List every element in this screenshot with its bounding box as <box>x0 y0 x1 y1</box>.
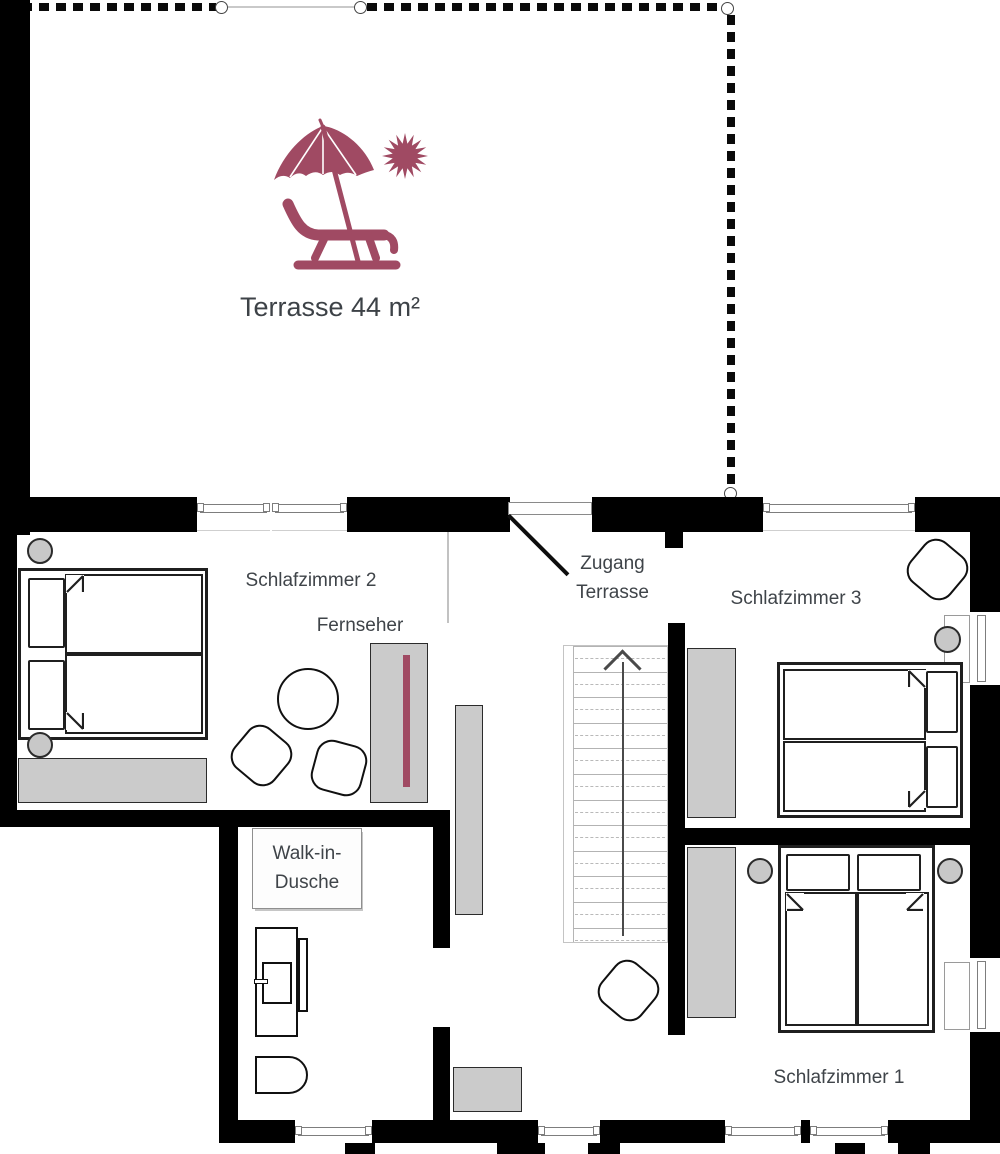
bedside-lamp <box>747 858 773 884</box>
staircase <box>563 645 668 943</box>
vanity-side-panel <box>298 938 308 1012</box>
south-wall-mullion <box>801 1120 810 1143</box>
stair-treads <box>573 646 667 942</box>
bedroom2-label: Schlafzimmer 2 <box>225 567 397 596</box>
south-wall-c <box>600 1120 725 1143</box>
terrace-label: Terrasse 44 m² <box>240 292 420 323</box>
south-wall-b <box>372 1120 538 1143</box>
shower-label-line2: Dusche <box>275 872 339 893</box>
pillow <box>28 660 65 730</box>
terrace-left-wall <box>0 0 30 535</box>
bedside-lamp <box>937 858 963 884</box>
terrace-door <box>508 502 592 515</box>
bedroom1-window-south-2 <box>810 1120 888 1143</box>
bedroom2-bench <box>18 758 207 803</box>
pillow <box>857 854 921 891</box>
bedroom2-window-2 <box>272 497 347 532</box>
mattress <box>65 654 203 734</box>
hall-east-wall-lower <box>668 845 685 1035</box>
hall-chair <box>591 953 666 1028</box>
north-wall-c <box>592 497 763 532</box>
north-wall-c-stub <box>665 532 683 548</box>
mattress <box>65 574 203 654</box>
mattress-fold-corner <box>906 893 924 911</box>
bedroom3-wardrobe <box>687 648 736 818</box>
toilet <box>255 1056 308 1094</box>
lounger-icon <box>288 204 396 265</box>
terrace-gate-line <box>228 6 356 8</box>
bathroom-window-south <box>295 1120 372 1143</box>
hall-cabinet <box>453 1067 522 1112</box>
bedside-lamp <box>934 626 961 653</box>
bedroom1-window-east <box>970 958 1000 1032</box>
bedroom3-bedroom1-divider <box>668 828 1000 845</box>
partition-edge-line <box>447 532 449 623</box>
south-pier <box>497 1143 545 1154</box>
south-pier <box>898 1143 930 1154</box>
east-wall-upper <box>970 532 1000 612</box>
pillow <box>926 746 958 808</box>
sink-faucet <box>254 979 268 984</box>
south-pier <box>835 1143 865 1154</box>
bedroom2-double-bed <box>18 568 208 740</box>
bedroom3-window-east <box>970 612 1000 685</box>
bedroom1-label: Schlafzimmer 1 <box>753 1064 925 1093</box>
shower-label-line1: Walk-in- <box>273 843 342 864</box>
north-wall-d <box>915 497 1000 532</box>
hall-window-south <box>538 1120 600 1143</box>
railing-post <box>215 1 228 14</box>
floorplan: Terrasse 44 m² <box>0 0 1000 1154</box>
mattress <box>783 741 926 812</box>
mattress-fold-corner <box>786 893 804 911</box>
mattress-fold-corner <box>66 712 84 730</box>
north-wall-a <box>30 497 197 532</box>
bathroom-east-wall <box>433 822 450 948</box>
round-table <box>277 668 339 730</box>
terrace-railing-top-left <box>22 3 216 11</box>
pillow <box>786 854 850 891</box>
railing-post <box>721 2 734 15</box>
mattress-fold-corner <box>908 790 926 808</box>
terrace-access-line2: Terrasse <box>576 582 649 603</box>
south-pier <box>588 1143 620 1154</box>
terrace-access-label: Zugang Terrasse <box>545 550 680 607</box>
mattress-fold-corner <box>66 575 84 593</box>
tv-screen <box>403 655 410 787</box>
bedroom3-window-north <box>763 497 915 532</box>
south-pier <box>345 1143 375 1154</box>
bedroom3-chair <box>900 532 975 607</box>
parasol-lounger-sun-icon <box>268 118 438 278</box>
bedroom3-label: Schlafzimmer 3 <box>710 585 882 614</box>
bathroom-west-wall <box>219 822 238 1143</box>
stair-direction-line <box>622 662 624 936</box>
mattress <box>783 669 926 740</box>
chair <box>224 718 299 793</box>
railing-post <box>354 1 367 14</box>
bedroom1-window-frame <box>944 962 970 1030</box>
pillow <box>28 578 65 648</box>
north-wall-b <box>347 497 510 532</box>
east-wall-mid <box>970 685 1000 958</box>
sun-icon <box>382 133 428 179</box>
bedroom3-double-bed <box>777 662 963 818</box>
bedside-lamp <box>27 732 53 758</box>
tv-label: Fernseher <box>305 612 415 641</box>
mattress-fold-corner <box>908 670 926 688</box>
tv-sideboard <box>370 643 428 803</box>
bedroom1-wardrobe <box>687 847 736 1018</box>
hall-wardrobe <box>455 705 483 915</box>
west-wall-bedroom2 <box>0 497 17 827</box>
terrace-railing-right <box>727 15 735 487</box>
terrace-access-line1: Zugang <box>580 553 644 574</box>
mattress <box>857 892 929 1026</box>
south-wall-a <box>219 1120 295 1143</box>
chair <box>307 736 371 800</box>
south-wall-d <box>888 1120 1000 1143</box>
mattress <box>785 892 857 1026</box>
hall-east-wall-upper <box>668 623 685 828</box>
bedroom1-window-south-1 <box>725 1120 801 1143</box>
bedroom1-double-bed <box>778 845 935 1033</box>
shower-label: Walk-in- Dusche <box>252 840 362 897</box>
pillow <box>926 671 958 733</box>
bedside-lamp <box>27 538 53 564</box>
terrace-railing-top-right <box>367 3 723 11</box>
bedroom2-window-1 <box>197 497 270 532</box>
